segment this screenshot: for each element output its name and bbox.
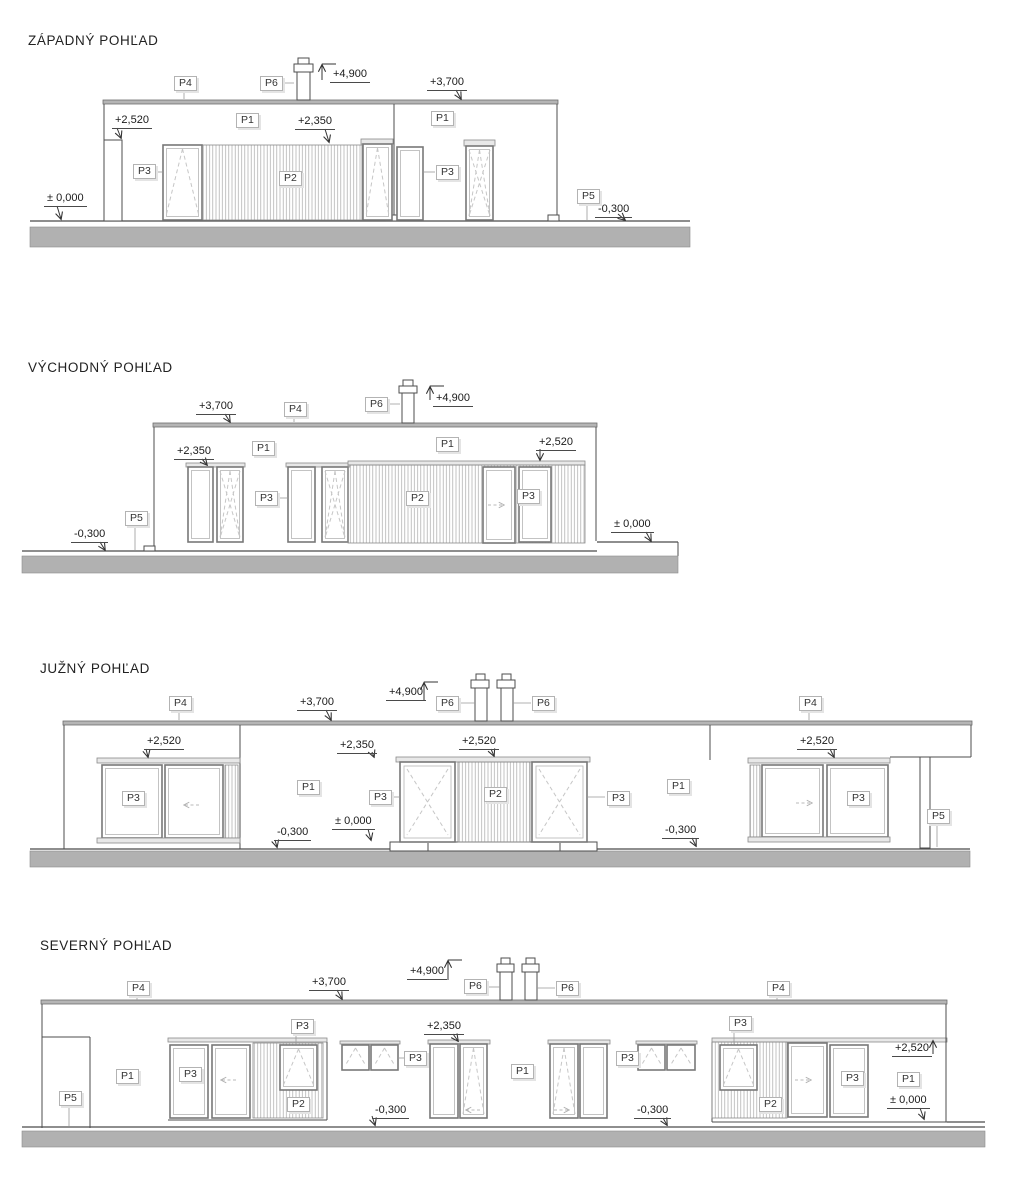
annotations-layer: ZÁPADNÝ POHĽAD VÝCHODNÝ POHĽAD JUŽNÝ POH… [0,0,1022,1200]
material-label-p1: P1 [667,779,690,794]
material-label-p3: P3 [122,791,145,806]
material-label-p2: P2 [287,1097,310,1112]
material-label-p3: P3 [179,1067,202,1082]
material-label-p6: P6 [464,979,487,994]
drawing-canvas: ZÁPADNÝ POHĽAD VÝCHODNÝ POHĽAD JUŽNÝ POH… [0,0,1022,1200]
material-label-p1: P1 [297,780,320,795]
level-dimension: +4,900 [407,965,447,980]
level-dimension: +3,700 [309,976,349,991]
material-label-p2: P2 [279,171,302,186]
level-dimension: +2,520 [536,436,576,451]
level-dimension: -0,300 [662,824,699,839]
material-label-p3: P3 [729,1016,752,1031]
level-dimension: ± 0,000 [332,815,375,830]
level-dimension: +2,350 [174,445,214,460]
material-label-p3: P3 [255,491,278,506]
material-label-p1: P1 [116,1069,139,1084]
level-dimension: -0,300 [71,528,108,543]
material-label-p1: P1 [436,437,459,452]
level-dimension: ± 0,000 [611,518,654,533]
material-label-p6: P6 [260,76,283,91]
material-label-p5: P5 [927,809,950,824]
material-label-p3: P3 [404,1051,427,1066]
level-dimension: +2,350 [337,739,377,754]
material-label-p5: P5 [59,1091,82,1106]
material-label-p3: P3 [133,164,156,179]
material-label-p3: P3 [616,1051,639,1066]
level-dimension: +4,900 [330,68,370,83]
level-dimension: +2,350 [424,1020,464,1035]
material-label-p3: P3 [841,1071,864,1086]
elevation-title-east: VÝCHODNÝ POHĽAD [28,360,173,375]
material-label-p6: P6 [436,696,459,711]
material-label-p1: P1 [252,441,275,456]
level-dimension: +3,700 [196,400,236,415]
material-label-p4: P4 [169,696,192,711]
material-label-p2: P2 [484,787,507,802]
material-label-p2: P2 [759,1097,782,1112]
material-label-p1: P1 [431,111,454,126]
material-label-p5: P5 [125,511,148,526]
material-label-p6: P6 [365,397,388,412]
material-label-p3: P3 [436,165,459,180]
material-label-p6: P6 [556,981,579,996]
level-dimension: +2,520 [797,735,837,750]
material-label-p6: P6 [532,696,555,711]
level-dimension: +3,700 [297,696,337,711]
level-dimension: +4,900 [386,686,426,701]
elevation-title-south: JUŽNÝ POHĽAD [40,661,150,676]
level-dimension: +2,520 [144,735,184,750]
level-dimension: +2,350 [295,115,335,130]
material-label-p1: P1 [511,1064,534,1079]
level-dimension: -0,300 [634,1104,671,1119]
material-label-p1: P1 [897,1072,920,1087]
level-dimension: +3,700 [427,76,467,91]
elevation-title-north: SEVERNÝ POHĽAD [40,938,172,953]
level-dimension: ± 0,000 [887,1094,930,1109]
level-dimension: -0,300 [372,1104,409,1119]
level-dimension: -0,300 [274,826,311,841]
material-label-p4: P4 [767,981,790,996]
material-label-p4: P4 [127,981,150,996]
level-dimension: +2,520 [892,1042,932,1057]
level-dimension: +2,520 [459,735,499,750]
level-dimension: -0,300 [595,203,632,218]
material-label-p3: P3 [847,791,870,806]
material-label-p3: P3 [369,790,392,805]
level-dimension: +2,520 [112,114,152,129]
level-dimension: +4,900 [433,392,473,407]
elevation-title-west: ZÁPADNÝ POHĽAD [28,33,158,48]
material-label-p3: P3 [607,791,630,806]
material-label-p2: P2 [406,491,429,506]
material-label-p3: P3 [517,489,540,504]
material-label-p4: P4 [284,402,307,417]
material-label-p5: P5 [577,189,600,204]
level-dimension: ± 0,000 [44,192,87,207]
material-label-p1: P1 [236,113,259,128]
material-label-p4: P4 [799,696,822,711]
material-label-p4: P4 [174,76,197,91]
material-label-p3: P3 [291,1019,314,1034]
